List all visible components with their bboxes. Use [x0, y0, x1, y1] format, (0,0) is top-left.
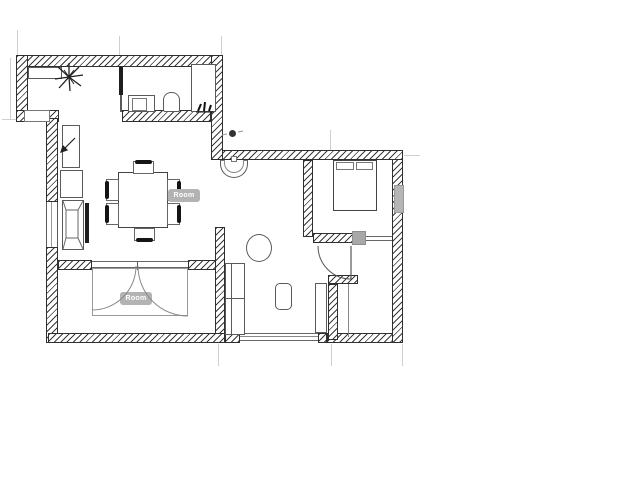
- wall-top-right: [217, 150, 403, 160]
- dimension-tick: [402, 344, 403, 366]
- dimension-tick: [2, 119, 16, 120]
- coffee-table[interactable]: [275, 283, 292, 310]
- dimension-tick: [330, 130, 331, 150]
- entry-threshold: [24, 110, 50, 122]
- bedroom-door-sill: [366, 236, 392, 241]
- wall-niche-stub: [328, 275, 358, 284]
- wall-middle: [215, 227, 225, 336]
- shower-cabin[interactable]: [191, 64, 216, 112]
- dimension-tick: [331, 344, 332, 366]
- wall-left-main-upper: [46, 118, 58, 202]
- sofa[interactable]: [225, 263, 245, 335]
- dimension-tick: [221, 36, 222, 55]
- wall-room2-top-right: [188, 260, 216, 270]
- room-label-dining[interactable]: Room: [168, 189, 200, 202]
- dimension-tick: [218, 344, 219, 366]
- bed-pillow: [336, 162, 354, 170]
- wardrobe-center-post: [137, 261, 138, 270]
- floorplan-canvas: Room Room: [0, 0, 640, 480]
- wall-basin-tap: [231, 156, 237, 162]
- refrigerator[interactable]: [62, 125, 80, 168]
- wall-niche-vertical: [328, 284, 338, 340]
- armchair-unit[interactable]: [62, 200, 84, 250]
- sink-basin: [132, 98, 147, 111]
- wall-shelf[interactable]: [28, 67, 62, 79]
- sofa-cushion-divider: [225, 298, 245, 299]
- bathroom-door[interactable]: [119, 67, 123, 95]
- chair-back: [136, 238, 153, 242]
- balcony-window-pane: [240, 336, 318, 337]
- dimension-tick: [17, 30, 18, 55]
- room2-door-opening: [92, 261, 188, 268]
- ceiling-light-icon: [229, 130, 236, 137]
- wall-room2-top-left: [58, 260, 92, 270]
- door-column: [352, 231, 366, 245]
- kitchen-window-pane: [51, 202, 52, 247]
- sofa-backrest: [231, 263, 232, 335]
- round-table[interactable]: [246, 234, 272, 262]
- wall-bottom-stub-b: [318, 333, 327, 343]
- tv-panel[interactable]: [85, 203, 89, 243]
- kitchen-window: [46, 202, 58, 247]
- chair-back: [105, 205, 109, 223]
- closet-panel[interactable]: [315, 283, 327, 333]
- chair-back: [177, 205, 181, 223]
- dimension-tick: [10, 58, 11, 120]
- dimension-tick: [404, 155, 420, 156]
- chair-back: [105, 181, 109, 199]
- wall-right: [392, 150, 403, 343]
- dimension-tick: [119, 36, 120, 55]
- bed-pillow: [356, 162, 373, 170]
- wall-bottom-left: [48, 333, 225, 343]
- radiator: [394, 185, 404, 213]
- closet-slider-track: [348, 284, 349, 337]
- balcony-window: [240, 333, 318, 341]
- wall-left-main-lower: [46, 247, 58, 343]
- dining-table[interactable]: [118, 172, 168, 228]
- chair-back: [135, 160, 152, 164]
- room-label-second[interactable]: Room: [120, 292, 152, 305]
- toilet[interactable]: [163, 92, 180, 112]
- kitchen-cabinet[interactable]: [60, 170, 83, 198]
- wall-bedroom-left: [303, 160, 313, 237]
